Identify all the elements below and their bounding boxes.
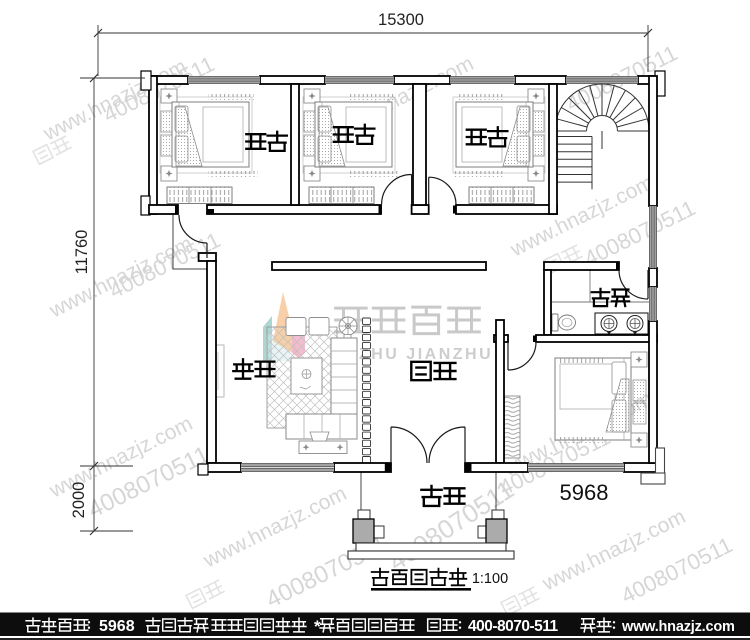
svg-text:*: * [314,617,321,636]
svg-text:www.hnazjz.com: www.hnazjz.com [621,619,735,635]
svg-text:5968: 5968 [99,618,135,635]
svg-text:2000: 2000 [70,482,88,519]
svg-text:400-8070-511: 400-8070-511 [468,618,559,635]
svg-text:1:100: 1:100 [472,571,508,587]
svg-text:5968: 5968 [560,480,609,505]
svg-text:11760: 11760 [73,230,91,275]
svg-text:15300: 15300 [378,11,424,29]
